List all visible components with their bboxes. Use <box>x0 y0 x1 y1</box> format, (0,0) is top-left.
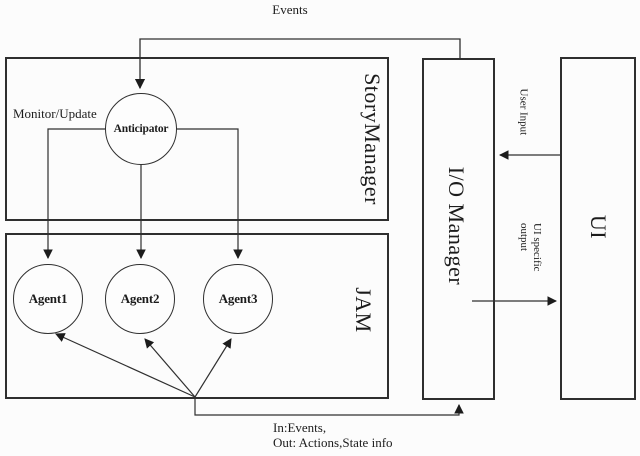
agent1-node: Agent1 <box>13 264 83 334</box>
anticipator-node: Anticipator <box>105 93 177 165</box>
story-manager-box <box>5 57 389 221</box>
agent1-node-label: Agent1 <box>29 291 68 307</box>
architecture-diagram: StoryManager JAM I/O Manager UI Anticipa… <box>0 0 640 456</box>
ui-label: UI <box>585 197 611 257</box>
agent2-node-label: Agent2 <box>121 291 160 307</box>
in-out-annotation: In:Events, Out: Actions,State info <box>273 420 393 450</box>
in-out-annotation-line1: In:Events, <box>273 420 393 435</box>
ui-specific-output-line2: output <box>517 223 530 283</box>
agent2-node: Agent2 <box>105 264 175 334</box>
jam-to-io-manager-arrow <box>195 399 459 415</box>
jam-label: JAM <box>350 260 376 360</box>
agent3-node-label: Agent3 <box>219 291 258 307</box>
anticipator-node-label: Anticipator <box>114 123 169 135</box>
user-input-annotation: User Input <box>517 89 530 147</box>
io-manager-label: I/O Manager <box>443 156 469 296</box>
events-annotation: Events <box>258 2 322 17</box>
agent3-node: Agent3 <box>203 264 273 334</box>
ui-specific-output-line1: UI specific <box>530 223 543 283</box>
in-out-annotation-line2: Out: Actions,State info <box>273 435 393 450</box>
monitor-update-annotation: Monitor/Update <box>13 106 97 121</box>
ui-specific-output-annotation: UI specific output <box>517 223 543 283</box>
story-manager-label: StoryManager <box>359 49 385 229</box>
